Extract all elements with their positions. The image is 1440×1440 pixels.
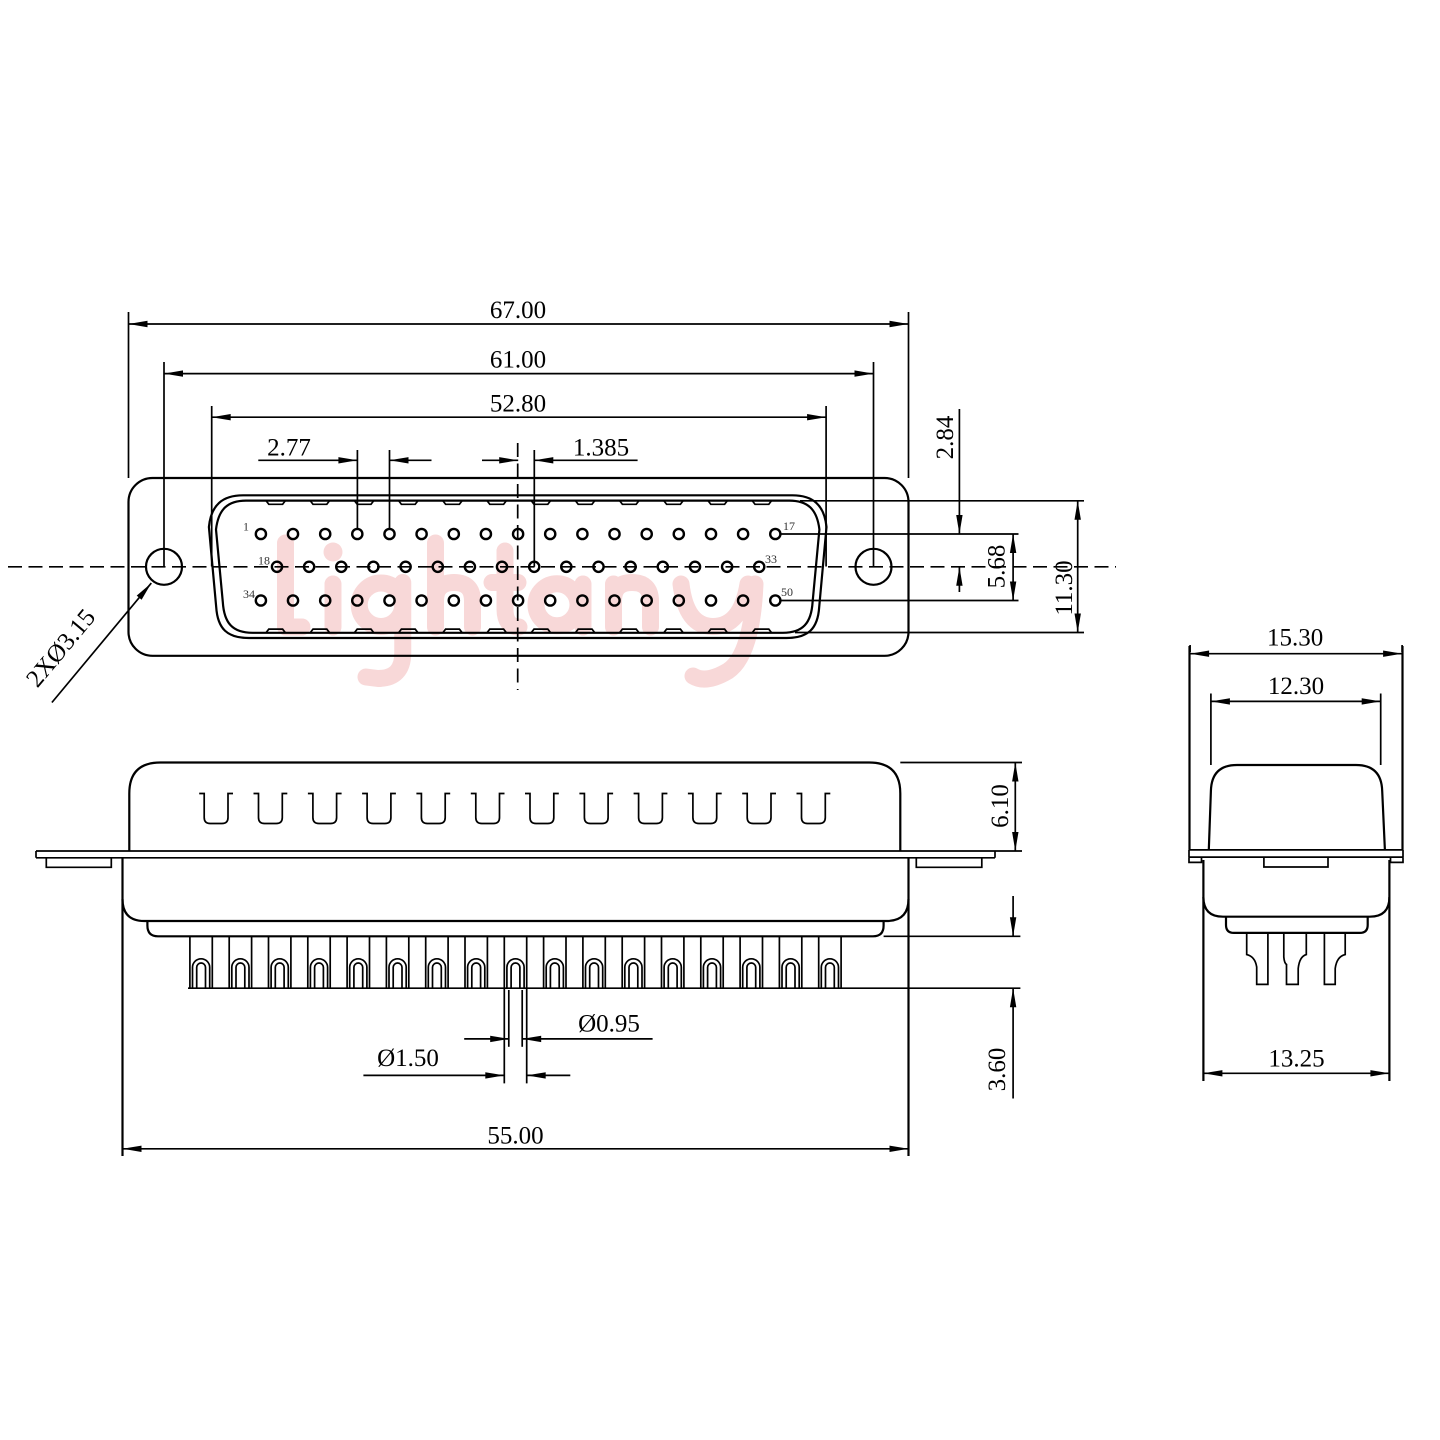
svg-text:6.10: 6.10 bbox=[987, 784, 1014, 828]
svg-text:1: 1 bbox=[243, 520, 249, 534]
svg-text:67.00: 67.00 bbox=[490, 297, 546, 324]
svg-text:Ø0.95: Ø0.95 bbox=[578, 1011, 640, 1038]
svg-text:15.30: 15.30 bbox=[1267, 625, 1323, 652]
svg-text:1.385: 1.385 bbox=[573, 435, 629, 462]
svg-text:50: 50 bbox=[781, 585, 793, 599]
svg-text:11.30: 11.30 bbox=[1051, 560, 1078, 615]
svg-text:34: 34 bbox=[243, 587, 255, 601]
svg-text:55.00: 55.00 bbox=[487, 1123, 543, 1150]
svg-text:Ø1.50: Ø1.50 bbox=[377, 1045, 439, 1072]
svg-text:2.84: 2.84 bbox=[932, 415, 959, 459]
svg-text:18: 18 bbox=[258, 554, 270, 568]
svg-text:33: 33 bbox=[765, 552, 777, 566]
svg-text:5.68: 5.68 bbox=[984, 545, 1011, 589]
svg-text:61.00: 61.00 bbox=[490, 347, 546, 374]
svg-text:13.25: 13.25 bbox=[1268, 1046, 1324, 1073]
svg-text:3.60: 3.60 bbox=[984, 1048, 1011, 1092]
svg-text:52.80: 52.80 bbox=[490, 390, 546, 417]
svg-text:17: 17 bbox=[783, 519, 795, 533]
svg-text:2.77: 2.77 bbox=[267, 435, 311, 462]
svg-text:12.30: 12.30 bbox=[1268, 673, 1324, 700]
